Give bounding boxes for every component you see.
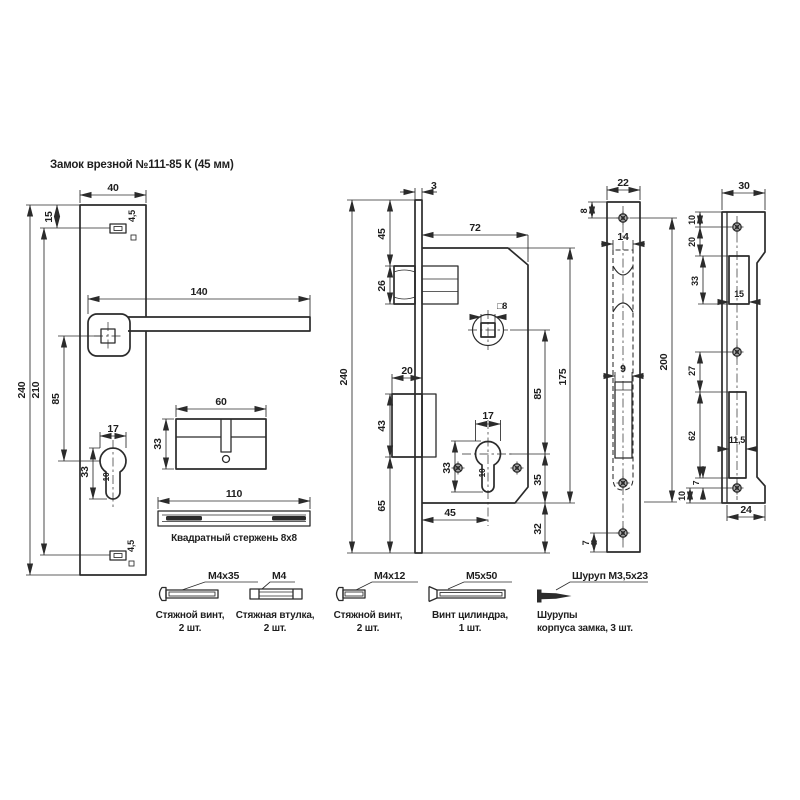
dim-screw-to-bolt: 27 <box>687 366 697 376</box>
dim-centers-distance: 85 <box>532 388 544 400</box>
dim-cyl-width: 17 <box>482 410 494 422</box>
hardware-item-screw-m5x50: М5х50 Винт цилиндра, 1 шт. <box>429 570 512 634</box>
latch-tail-lines <box>422 279 458 292</box>
faceplate-screw-hole-icon <box>617 477 630 490</box>
label-leader <box>448 582 512 589</box>
screw-shaft <box>343 590 365 598</box>
dim-plate-width: 40 <box>107 182 119 194</box>
label-leader <box>182 582 258 590</box>
lock-body-dimensions: 3 240 45 26 43 65 20 72 □8 17 33 10 45 <box>338 180 575 553</box>
screw-thread <box>440 593 502 597</box>
hardware-qty: 2 шт. <box>179 623 202 634</box>
dim-keyhole-width: 17 <box>107 423 119 435</box>
screw-thread <box>345 592 363 596</box>
dim-backset: 45 <box>444 507 456 519</box>
top-screw-slot-inner <box>114 227 122 231</box>
dim-screw-to-bottom: 10 <box>677 491 687 501</box>
dim-strike-top-screw: 10 <box>687 215 697 225</box>
screw-head <box>337 588 344 601</box>
label-leader <box>262 582 295 589</box>
strike-plate-view: 30 10 20 33 15 27 62 11,5 7 10 24 <box>677 180 765 521</box>
dim-strike-width: 30 <box>738 180 750 192</box>
faceplate-screw-hole-icon <box>617 527 630 540</box>
strike-plate-dimensions: 30 10 20 33 15 27 62 11,5 7 10 24 <box>677 180 765 521</box>
dim-handle-length: 140 <box>191 286 208 298</box>
dim-faceplate-length: 200 <box>658 353 670 370</box>
technical-drawing-page: Замок врезной №111-85 К (45 мм) 40 15 24… <box>0 0 800 800</box>
handle-plate-outline <box>80 205 146 575</box>
cylinder-view: 60 33 <box>152 396 266 469</box>
hardware-caption: Стяжной винт, <box>334 610 403 621</box>
handle-plate-view: 40 15 240 210 85 140 17 33 10 4,5 4,5 <box>16 182 310 575</box>
dim-faceplate-height: 240 <box>338 368 350 385</box>
lock-case-outline <box>422 248 528 503</box>
faceplate-view: 22 8 14 9 7 200 <box>579 177 677 552</box>
hardware-spec: М5х50 <box>466 570 497 582</box>
spindle-dimensions: 110 <box>158 488 310 509</box>
hardware-qty: 2 шт. <box>264 623 287 634</box>
handle-lever <box>128 317 310 331</box>
dim-faceplate-width: 22 <box>617 177 629 189</box>
dim-plate-height: 240 <box>16 381 28 398</box>
sleeve-ends <box>259 589 293 599</box>
faceplate-screw-hole-icon <box>617 212 630 225</box>
top-screw-slot <box>110 224 126 233</box>
hardware-caption: Шурупы <box>537 610 577 621</box>
cylinder-cam-slot <box>221 419 231 452</box>
spindle-view: 110 Квадратный стержень 8х8 <box>158 488 310 544</box>
dim-cyl-to-bottom: 35 <box>532 474 544 486</box>
hardware-item-wood-screw: Шуруп М3,5х23 Шурупы корпуса замка, 3 шт… <box>537 570 648 634</box>
hardware-item-screw-m4x12: М4х12 Стяжной винт, 2 шт. <box>334 570 418 634</box>
latch-tail <box>422 266 458 304</box>
hardware-spec: М4х35 <box>208 570 239 582</box>
dim-cylinder-height: 33 <box>152 438 164 450</box>
dim-bolt-height: 43 <box>376 420 388 432</box>
dim-cyl-stem: 10 <box>477 468 487 478</box>
dim-top-hole-size: 4,5 <box>127 210 137 222</box>
mortise-lock-drawing: Замок врезной №111-85 К (45 мм) 40 15 24… <box>0 0 800 800</box>
screw-shaft <box>437 590 505 598</box>
dim-top-to-latch: 45 <box>376 228 388 240</box>
case-screw-hole-icon <box>452 462 465 475</box>
latch-bevel-lines <box>394 270 415 299</box>
hardware-caption: Стяжной винт, <box>156 610 225 621</box>
hardware-item-screw-m4x35: М4х35 Стяжной винт, 2 шт. <box>156 570 258 634</box>
dim-latch-cut-height: 33 <box>690 276 700 286</box>
faceplate-dimensions: 22 8 14 9 7 200 <box>579 177 677 552</box>
dim-keyhole-height: 33 <box>79 466 91 478</box>
cylinder-centerlines <box>462 420 514 526</box>
bottom-screw-slot-inner <box>114 554 122 558</box>
hardware-caption: Винт цилиндра, <box>432 610 508 621</box>
dim-latch-cut-width: 15 <box>734 289 744 299</box>
sleeve-body <box>250 589 302 599</box>
strike-screw-hole-icon <box>731 346 744 359</box>
label-leader <box>356 582 418 590</box>
screw-shaft <box>166 590 218 598</box>
hardware-item-sleeve-m4: М4 Стяжная втулка, 2 шт. <box>236 570 315 634</box>
case-screw-hole-icon <box>511 462 524 475</box>
dim-top-screw-offset: 8 <box>579 208 589 213</box>
cylinder-cutout <box>476 442 501 492</box>
bottom-screw-slot <box>110 551 126 560</box>
dim-bolt-cut-height: 62 <box>687 431 697 441</box>
dim-latch-height: 26 <box>376 280 388 292</box>
dim-body-slot-width: 14 <box>617 231 629 243</box>
cylinder-dimensions: 60 33 <box>152 396 266 469</box>
wood-screw-silhouette <box>537 590 572 603</box>
dim-body-height: 175 <box>557 368 569 385</box>
hardware-qty: 1 шт. <box>459 623 482 634</box>
strike-screw-hole-icon <box>731 221 744 234</box>
spindle-knurl-left <box>166 516 202 521</box>
deadbolt-tail <box>422 394 436 457</box>
drawing-title: Замок врезной №111-85 К (45 мм) <box>50 159 234 171</box>
faceplate-outline <box>607 202 640 552</box>
dim-bottom-margin: 32 <box>532 523 544 535</box>
bolt-slot <box>615 382 632 458</box>
dim-spindle-hole: □8 <box>497 301 507 311</box>
dim-spindle-length: 110 <box>226 488 243 500</box>
hardware-caption: Стяжная втулка, <box>236 610 315 621</box>
dim-bolt-cut-width: 11,5 <box>729 435 745 445</box>
hardware-spec: М4 <box>272 570 287 582</box>
dim-body-width: 72 <box>469 222 481 234</box>
screw-head <box>429 587 437 602</box>
spindle-knurl-right <box>272 516 306 521</box>
hardware-spec: Шуруп М3,5х23 <box>572 570 648 582</box>
dim-bottom-screw-offset: 7 <box>581 540 591 545</box>
cylinder-pin-hole <box>223 456 230 463</box>
screw-head <box>160 588 167 601</box>
hardware-qty: корпуса замка, 3 шт. <box>537 623 633 634</box>
hardware-spec: М4х12 <box>374 570 405 582</box>
deadbolt <box>392 394 422 457</box>
lock-body-view: 3 240 45 26 43 65 20 72 □8 17 33 10 45 <box>338 180 575 553</box>
strike-screw-hole-icon <box>731 482 744 495</box>
handle-base <box>88 314 130 356</box>
dim-bottom-width: 24 <box>740 504 752 516</box>
bottom-square-mark <box>129 561 134 566</box>
dim-top-hole-offset: 15 <box>43 211 55 223</box>
dim-holes-span: 210 <box>30 381 42 398</box>
dim-screw-to-latch: 20 <box>687 237 697 247</box>
hardware-qty: 2 шт. <box>357 623 380 634</box>
dim-keyhole-stem: 10 <box>101 472 111 482</box>
dim-bolt-slot-width: 9 <box>620 363 626 375</box>
dim-cut-to-screw: 7 <box>691 480 701 485</box>
lock-faceplate <box>415 200 422 553</box>
dim-cylinder-length: 60 <box>215 396 227 408</box>
dim-bolt-throw: 20 <box>401 365 413 377</box>
spindle-caption: Квадратный стержень 8х8 <box>171 533 297 544</box>
dim-bolt-to-bottom: 65 <box>376 500 388 512</box>
dim-bottom-hole-size: 4,5 <box>126 540 136 552</box>
hardware-row: М4х35 Стяжной винт, 2 шт. М4 Стяжная вту… <box>156 570 649 634</box>
top-square-mark <box>131 235 136 240</box>
label-leader <box>556 582 648 590</box>
handle-plate-dimensions: 40 15 240 210 85 140 17 33 10 4,5 4,5 <box>16 182 310 575</box>
spindle-centerlines <box>468 310 508 350</box>
dim-faceplate-thickness: 3 <box>431 180 437 192</box>
dim-handle-to-keyhole: 85 <box>50 393 62 405</box>
screw-thread <box>169 592 215 596</box>
dim-cyl-height: 33 <box>441 462 453 474</box>
sleeve-inner-lines <box>259 592 293 596</box>
